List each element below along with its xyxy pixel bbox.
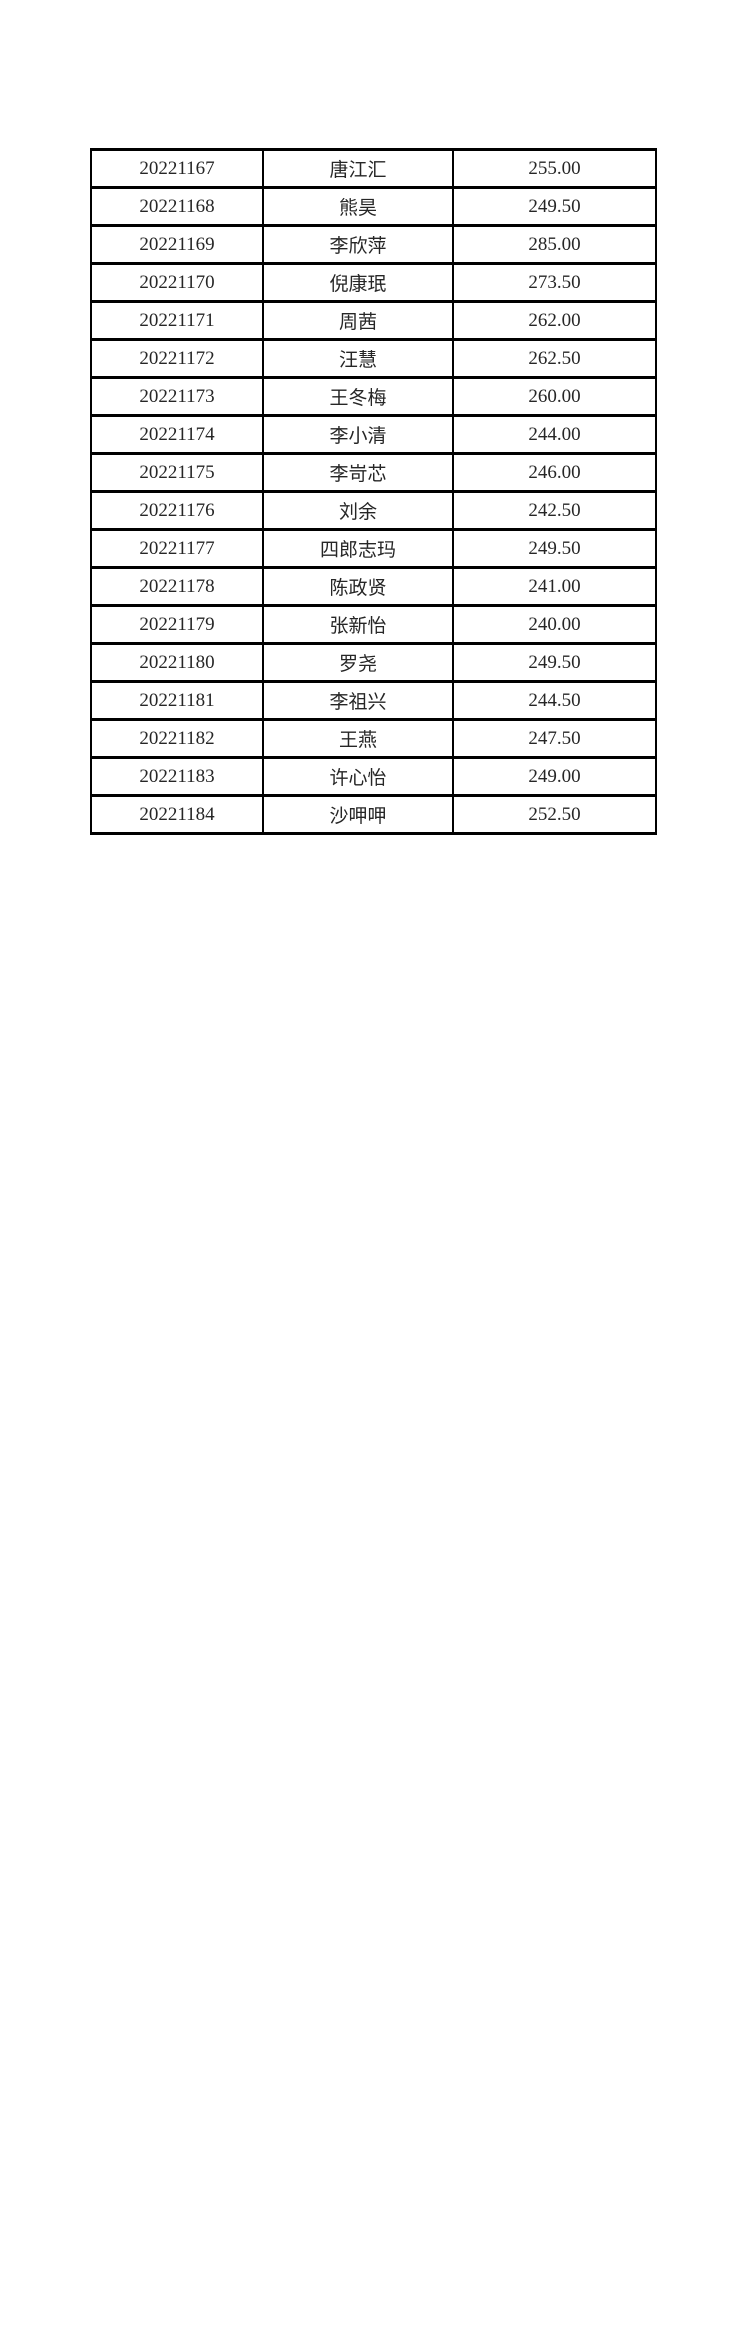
student-name-cell: 沙呷呷 [263,796,453,834]
student-name-cell: 张新怡 [263,606,453,644]
student-id-cell: 20221172 [91,340,263,378]
score-cell: 255.00 [453,150,656,188]
student-id-cell: 20221175 [91,454,263,492]
score-cell: 244.00 [453,416,656,454]
student-name-cell: 四郎志玛 [263,530,453,568]
table-row: 20221176刘余242.50 [91,492,656,530]
student-id-cell: 20221181 [91,682,263,720]
document-page: 20221167唐江汇255.0020221168熊昊249.502022116… [0,0,750,2338]
score-cell: 240.00 [453,606,656,644]
table-row: 20221167唐江汇255.00 [91,150,656,188]
score-cell: 260.00 [453,378,656,416]
table-row: 20221178陈政贤241.00 [91,568,656,606]
student-name-cell: 汪慧 [263,340,453,378]
table-row: 20221171周茜262.00 [91,302,656,340]
student-name-cell: 李岢芯 [263,454,453,492]
table-row: 20221183许心怡249.00 [91,758,656,796]
student-id-cell: 20221174 [91,416,263,454]
score-cell: 285.00 [453,226,656,264]
student-name-cell: 陈政贤 [263,568,453,606]
score-cell: 249.50 [453,530,656,568]
student-name-cell: 周茜 [263,302,453,340]
table-row: 20221170倪康珉273.50 [91,264,656,302]
student-name-cell: 罗尧 [263,644,453,682]
student-id-cell: 20221176 [91,492,263,530]
student-id-cell: 20221178 [91,568,263,606]
student-id-cell: 20221179 [91,606,263,644]
score-table-body: 20221167唐江汇255.0020221168熊昊249.502022116… [91,150,656,834]
student-id-cell: 20221168 [91,188,263,226]
table-row: 20221169李欣萍285.00 [91,226,656,264]
score-cell: 242.50 [453,492,656,530]
table-row: 20221180罗尧249.50 [91,644,656,682]
student-name-cell: 李祖兴 [263,682,453,720]
student-name-cell: 许心怡 [263,758,453,796]
student-id-cell: 20221169 [91,226,263,264]
student-name-cell: 李小清 [263,416,453,454]
table-row: 20221179张新怡240.00 [91,606,656,644]
table-row: 20221172汪慧262.50 [91,340,656,378]
student-id-cell: 20221170 [91,264,263,302]
student-id-cell: 20221171 [91,302,263,340]
student-id-cell: 20221177 [91,530,263,568]
score-cell: 262.50 [453,340,656,378]
student-name-cell: 熊昊 [263,188,453,226]
score-cell: 244.50 [453,682,656,720]
score-cell: 249.00 [453,758,656,796]
table-row: 20221174李小清244.00 [91,416,656,454]
student-id-cell: 20221167 [91,150,263,188]
student-name-cell: 李欣萍 [263,226,453,264]
student-name-cell: 王冬梅 [263,378,453,416]
score-cell: 273.50 [453,264,656,302]
table-row: 20221182王燕247.50 [91,720,656,758]
student-id-cell: 20221173 [91,378,263,416]
table-row: 20221181李祖兴244.50 [91,682,656,720]
student-id-cell: 20221184 [91,796,263,834]
score-table: 20221167唐江汇255.0020221168熊昊249.502022116… [90,148,657,835]
score-cell: 241.00 [453,568,656,606]
student-name-cell: 刘余 [263,492,453,530]
score-cell: 249.50 [453,188,656,226]
score-cell: 247.50 [453,720,656,758]
student-id-cell: 20221180 [91,644,263,682]
score-cell: 252.50 [453,796,656,834]
score-cell: 249.50 [453,644,656,682]
score-table-container: 20221167唐江汇255.0020221168熊昊249.502022116… [90,148,655,835]
table-row: 20221175李岢芯246.00 [91,454,656,492]
table-row: 20221177四郎志玛249.50 [91,530,656,568]
table-row: 20221173王冬梅260.00 [91,378,656,416]
student-name-cell: 王燕 [263,720,453,758]
student-name-cell: 倪康珉 [263,264,453,302]
score-cell: 246.00 [453,454,656,492]
student-name-cell: 唐江汇 [263,150,453,188]
student-id-cell: 20221183 [91,758,263,796]
table-row: 20221184沙呷呷252.50 [91,796,656,834]
student-id-cell: 20221182 [91,720,263,758]
table-row: 20221168熊昊249.50 [91,188,656,226]
score-cell: 262.00 [453,302,656,340]
